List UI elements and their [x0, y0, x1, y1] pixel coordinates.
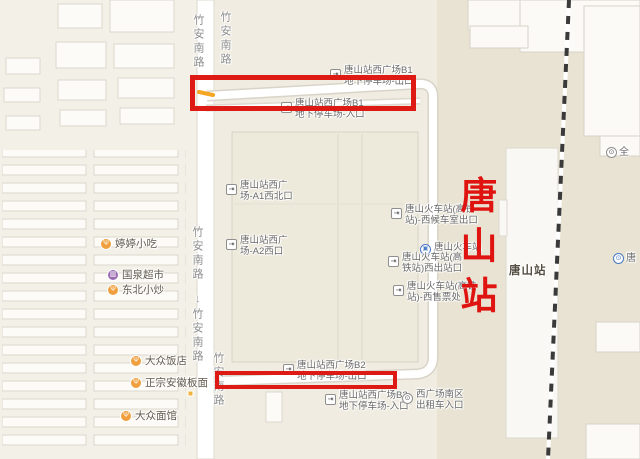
highlight-box-top [190, 75, 416, 111]
gate-exit-icon: ⇥ [393, 285, 404, 296]
road-label-zhuannan: 竹安南路 [218, 11, 232, 67]
station-map-label: 唐山站 [509, 262, 547, 278]
road-label-zhuannan: 竹安南路 [191, 14, 205, 70]
road-label-zhuannan: 竹安南路 [190, 308, 204, 364]
gate-exit-icon: ⇥ [226, 239, 237, 250]
residential-rows [2, 150, 186, 450]
poi-dazhong-noodle-house[interactable]: Ψ 大众面馆 [120, 408, 177, 423]
poi-dazhong-restaurant[interactable]: Ψ 大众饭店 [130, 353, 187, 368]
poi-circle-icon: ⊙ [606, 147, 617, 158]
restaurant-icon: Ψ [120, 410, 132, 422]
poi-anhui-noodles[interactable]: Ψ 正宗安徽板面 [130, 375, 208, 390]
taxi-icon: ⊙ [402, 393, 413, 404]
restaurant-icon: Ψ [130, 355, 142, 367]
road-label-zhuannan: 竹安南路 [190, 226, 204, 282]
poi-edge-top[interactable]: ⊙ 全 [606, 143, 629, 158]
poi-dongbei-stirfry[interactable]: Ψ 东北小炒 [107, 282, 164, 297]
gate-exit-icon: ⇥ [388, 256, 399, 267]
bus-stop-marker [188, 391, 193, 396]
oneway-arrow-icon: ↓ [195, 293, 201, 305]
gate-exit-icon: ⇥ [391, 208, 402, 219]
hotel-circle-icon: ⊙ [613, 253, 624, 264]
label-a2-gate[interactable]: ⇥ 唐山站西广场-A2西口 [226, 236, 288, 257]
restaurant-icon: Ψ [100, 238, 112, 250]
restaurant-icon: Ψ [130, 377, 142, 389]
highlight-box-bottom [215, 371, 397, 389]
supermarket-icon: ▥ [107, 269, 119, 281]
gate-exit-icon: ⇥ [226, 184, 237, 195]
label-b2-entrance[interactable]: ⇥ 唐山站西广场B2地下停车场-入口 [325, 391, 409, 412]
label-a1-gate[interactable]: ⇥ 唐山站西广场-A1西北口 [226, 181, 293, 202]
gate-entrance-icon: ⇥ [325, 394, 336, 405]
poi-edge-bottom[interactable]: ⊙ 唐 [613, 249, 636, 264]
map-canvas [0, 0, 640, 459]
restaurant-icon: Ψ [107, 284, 119, 296]
station-name-overlay: 唐山站 [452, 176, 498, 326]
poi-guoquan-supermarket[interactable]: ▥ 国泉超市 [107, 267, 164, 282]
poi-tingting-snacks[interactable]: Ψ 婷婷小吃 [100, 236, 157, 251]
label-taxi-entrance[interactable]: ⊙ 西广场南区出租车入口 [402, 390, 464, 411]
